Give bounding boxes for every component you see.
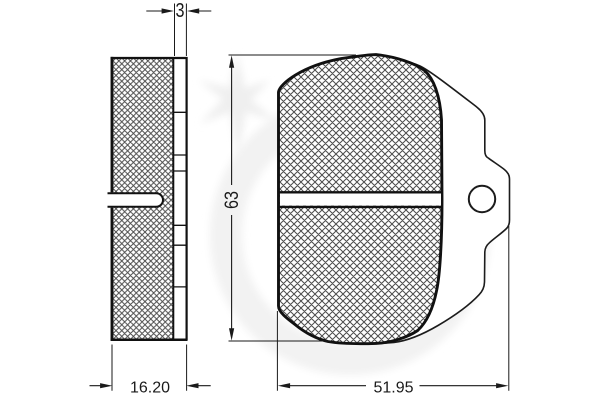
svg-text:63: 63	[222, 191, 243, 209]
svg-text:51.95: 51.95	[373, 379, 413, 396]
svg-text:16.20: 16.20	[130, 380, 170, 397]
svg-text:3: 3	[176, 0, 185, 22]
